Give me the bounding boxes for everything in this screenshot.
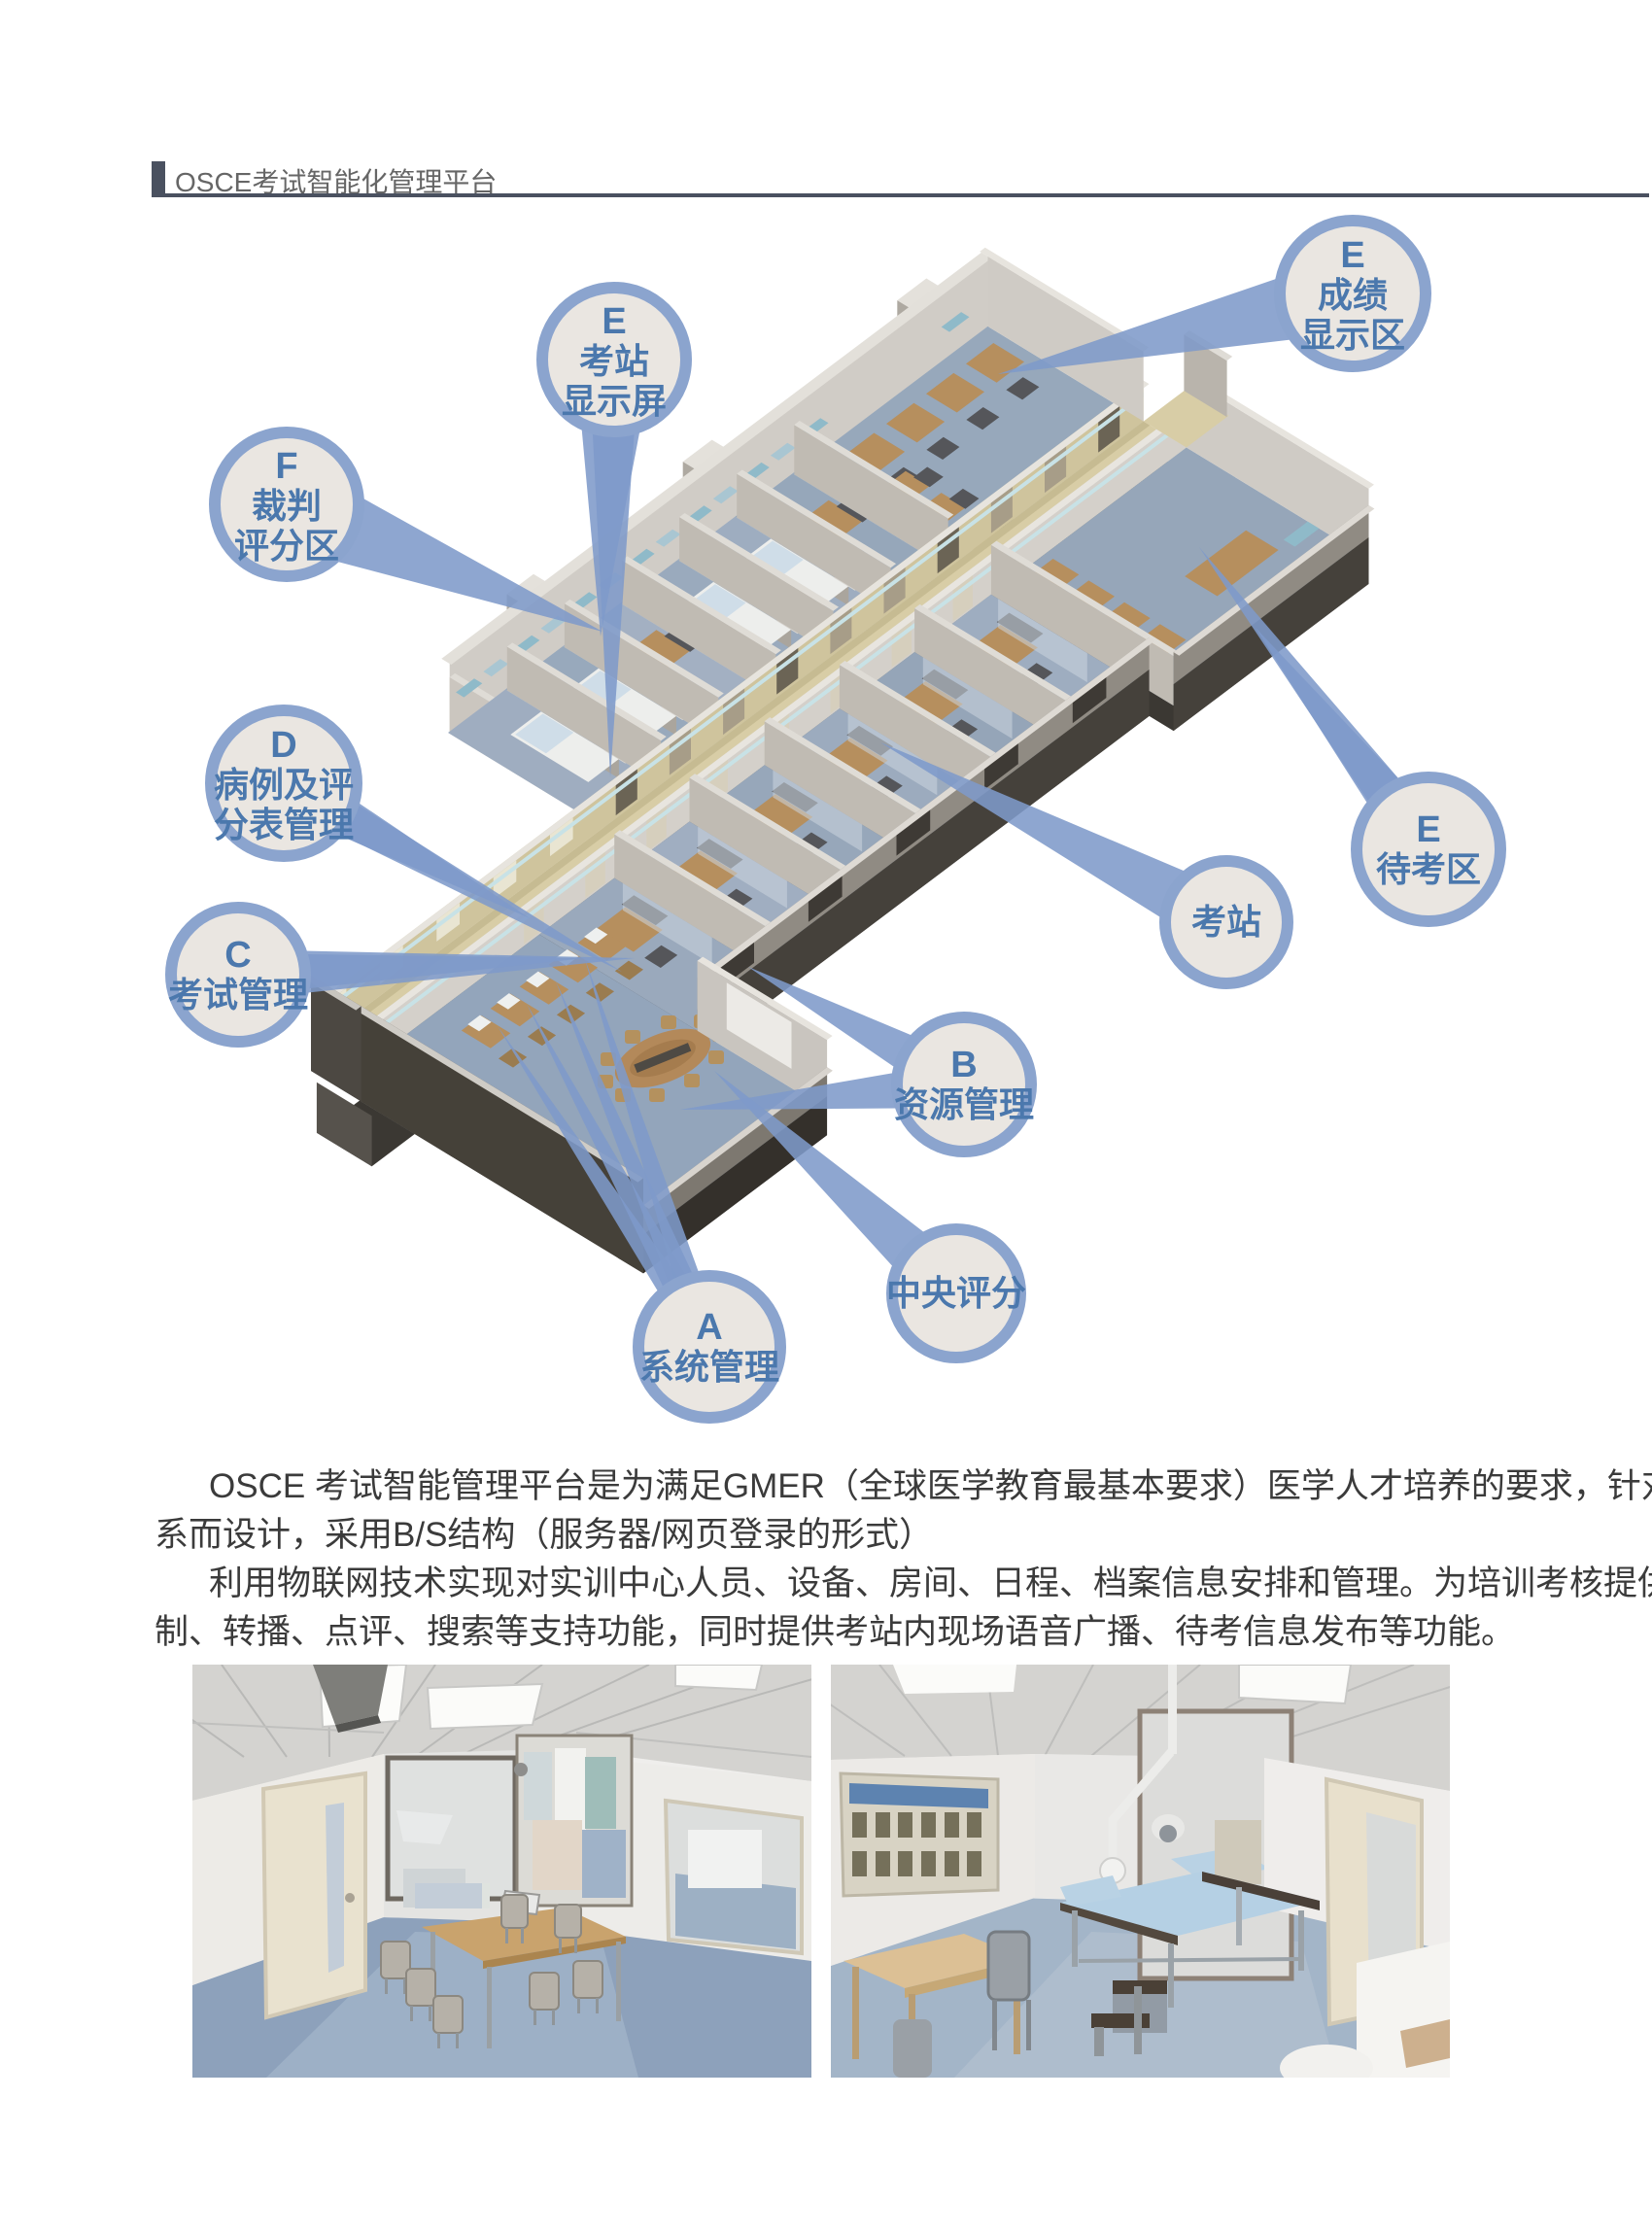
svg-text:E: E: [1416, 809, 1440, 850]
svg-text:显示屏: 显示屏: [562, 381, 667, 421]
svg-text:中央评分: 中央评分: [886, 1273, 1026, 1313]
svg-text:考站: 考站: [579, 341, 649, 381]
svg-text:E: E: [602, 301, 626, 342]
svg-text:考试管理: 考试管理: [168, 975, 308, 1014]
svg-text:分表管理: 分表管理: [214, 805, 354, 844]
svg-text:病例及评: 病例及评: [214, 765, 354, 805]
svg-text:系统管理: 系统管理: [639, 1347, 779, 1387]
svg-text:评分区: 评分区: [234, 526, 339, 566]
svg-text:B: B: [950, 1045, 977, 1085]
svg-text:E: E: [1340, 235, 1364, 276]
svg-text:C: C: [224, 935, 251, 976]
svg-text:资源管理: 资源管理: [894, 1084, 1034, 1124]
svg-text:显示区: 显示区: [1300, 315, 1405, 355]
svg-text:F: F: [275, 446, 297, 487]
svg-text:D: D: [270, 725, 296, 766]
svg-text:考站: 考站: [1191, 902, 1261, 942]
svg-text:成绩: 成绩: [1318, 275, 1388, 315]
svg-text:待考区: 待考区: [1376, 849, 1481, 889]
svg-text:A: A: [696, 1307, 722, 1348]
svg-text:裁判: 裁判: [252, 486, 322, 526]
